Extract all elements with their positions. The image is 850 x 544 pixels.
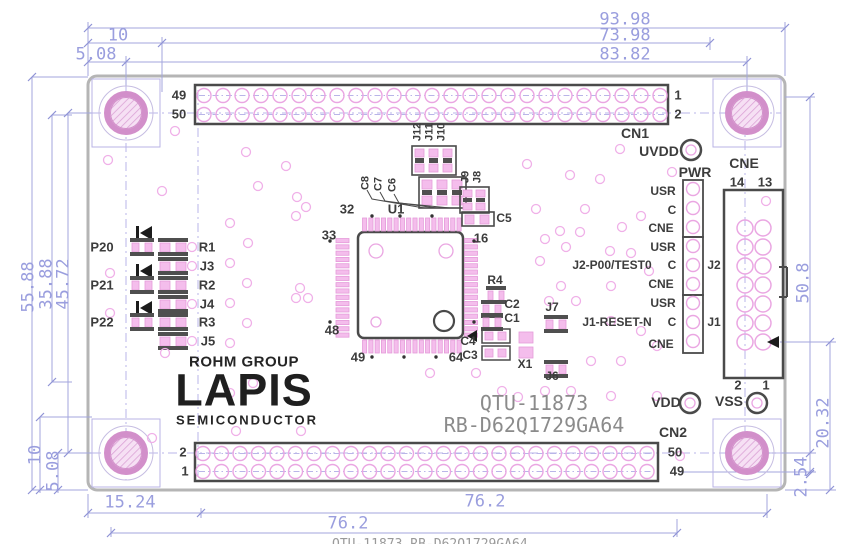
cne-pin1-label: 1 (762, 379, 769, 392)
u1-pin16-label: 16 (474, 232, 488, 245)
c1-label: C1 (504, 312, 519, 324)
dim-left-55-88: 55.88 (21, 261, 38, 312)
cne-ref-label: CNE (729, 156, 759, 170)
dim-bl-5-08: 5.08 (46, 451, 63, 492)
lapis-logo: LAPIS (175, 368, 313, 413)
j1-signal-label: J1-RESET-N (582, 316, 651, 328)
dim-bot-15-24: 15.24 (104, 495, 155, 512)
cn1-pin50-label: 50 (172, 108, 186, 121)
u1-ref-label: U1 (388, 203, 405, 216)
cne-pin2-label: 2 (734, 379, 741, 392)
j4-label: J4 (200, 298, 214, 311)
j10-label: J10 (437, 123, 448, 141)
cn1-pin2-label: 2 (674, 108, 681, 121)
u1-pin32-label: 32 (340, 203, 354, 216)
j2-ref-label: J2 (707, 259, 720, 271)
j6-label: J6 (545, 370, 558, 382)
c8-label: C8 (361, 176, 372, 190)
j7-label: J7 (545, 301, 558, 313)
c6-label: C6 (388, 178, 399, 192)
cne-col13-label: 13 (758, 176, 772, 189)
u1-pin49-label: 49 (351, 351, 365, 364)
c2-label: C2 (504, 298, 519, 310)
u1-pin48-label: 48 (325, 324, 339, 337)
dim-top-83-82: 83.82 (599, 47, 650, 64)
j12-label: J12 (413, 123, 424, 141)
p21-label: P21 (90, 279, 113, 292)
j2-signal-label: J2-P00/TEST0 (572, 259, 651, 271)
strip-row-usr2: USR (650, 241, 675, 253)
semiconductor-logo: SEMICONDUCTOR (176, 414, 318, 427)
pwr-label: PWR (679, 165, 712, 179)
part-number-2: RB-D62Q1729GA64 (444, 415, 625, 435)
cn2-pin1-label: 1 (181, 465, 188, 478)
p22-label: P22 (90, 316, 113, 329)
strip-row-cne3: CNE (648, 338, 673, 350)
dim-bot-76-2a: 76.2 (465, 494, 506, 511)
pcb-dimension-drawing: 93.98 73.98 83.82 10 5.08 55.88 35.88 45… (0, 0, 850, 544)
cn2-pin50-label: 50 (668, 446, 682, 459)
cn1-pin1-label: 1 (674, 89, 681, 102)
r4-label: R4 (487, 274, 502, 286)
dim-right-50-8: 50.8 (796, 263, 813, 304)
cn2-pin2-label: 2 (179, 446, 186, 459)
strip-row-c1: C (668, 204, 677, 216)
strip-row-cne2: CNE (648, 278, 673, 290)
dim-left-45-72: 45.72 (56, 258, 73, 309)
strip-row-c3: C (668, 316, 677, 328)
j11-label: J11 (425, 123, 436, 141)
pcb-drawing-graphics (0, 0, 850, 544)
strip-row-usr1: USR (650, 185, 675, 197)
dim-right-20-32: 20.32 (816, 397, 833, 448)
j5-label: J5 (201, 335, 215, 348)
j9-label: J9 (461, 171, 472, 183)
cn1-ref-label: CN1 (621, 126, 649, 140)
cne-col14-label: 14 (730, 176, 744, 189)
j8-label: J8 (473, 171, 484, 183)
x1-label: X1 (518, 358, 533, 370)
c4-label: C4 (460, 335, 475, 347)
dim-top-73-98: 73.98 (599, 28, 650, 45)
cn1-pin49-label: 49 (172, 89, 186, 102)
r2-label: R2 (199, 279, 216, 292)
cn2-pin49-label: 49 (670, 465, 684, 478)
part-number-1: QTU-11873 (480, 393, 588, 413)
u1-pin64-label: 64 (449, 351, 463, 364)
j1-ref-label: J1 (707, 316, 720, 328)
vss-label: VSS (715, 394, 743, 408)
uvdd-label: UVDD (639, 144, 679, 158)
dim-bot-76-2b: 76.2 (328, 516, 369, 533)
vdd-label: VDD (651, 395, 681, 409)
u1-pin33-label: 33 (322, 229, 336, 242)
dim-right-2-54: 2.54 (794, 457, 811, 498)
clipped-caption: QTU-11873 RB-D62Q1729GA64 (332, 537, 528, 544)
dim-top-10: 10 (108, 28, 128, 45)
dim-bl-10: 10 (28, 445, 45, 465)
c5-label: C5 (496, 212, 511, 224)
cn2-ref-label: CN2 (659, 425, 687, 439)
r1-label: R1 (199, 241, 216, 254)
r3-label: R3 (199, 316, 216, 329)
strip-row-cne1: CNE (648, 222, 673, 234)
j3-label: J3 (200, 260, 214, 273)
c3-label: C3 (462, 349, 477, 361)
strip-row-c2: C (668, 259, 677, 271)
dim-top-5-08: 5.08 (76, 47, 117, 64)
p20-label: P20 (90, 241, 113, 254)
c7-label: C7 (374, 177, 385, 191)
strip-row-usr3: USR (650, 297, 675, 309)
